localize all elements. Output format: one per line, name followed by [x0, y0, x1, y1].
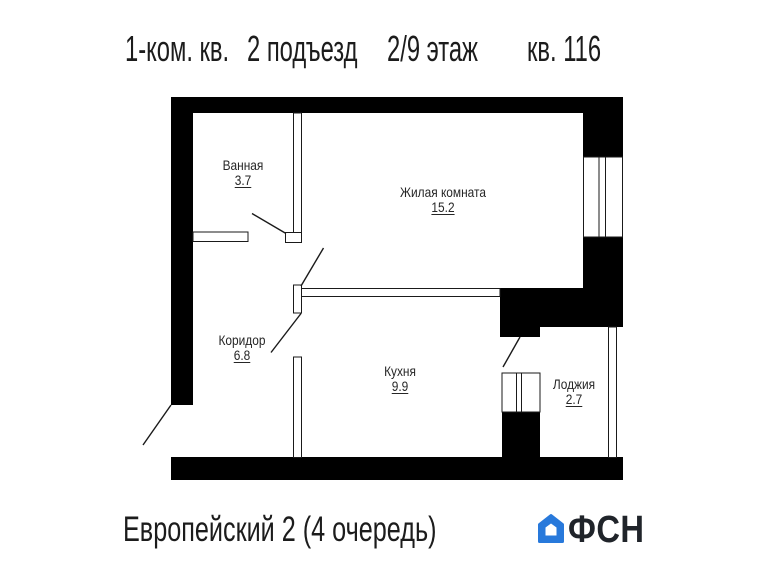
entrance-break-line — [143, 405, 171, 445]
room-area: 3.7 — [171, 173, 316, 188]
wall-under-window — [502, 412, 540, 458]
room-label-hallway: Коридор 6.8 — [170, 333, 315, 363]
wall-right-upper — [583, 97, 623, 157]
floorplan-page: 1-ком. кв. 2 подъезд 2/9 этаж кв. 116 — [0, 0, 768, 576]
room-label-living-room: Жилая комната 15.2 — [371, 185, 516, 215]
room-name: Ванная — [171, 158, 316, 173]
room-area: 6.8 — [170, 348, 315, 363]
room-name: Коридор — [170, 333, 315, 348]
floorplan-drawing — [0, 0, 768, 576]
wall-loggia-top — [540, 288, 585, 327]
room-label-bathroom: Ванная 3.7 — [171, 158, 316, 188]
room-name: Кухня — [328, 364, 473, 379]
logo-text: ФСН — [568, 511, 644, 549]
wall-mid-stub — [294, 285, 302, 313]
wall-right-mid — [583, 237, 623, 327]
wall-top — [171, 97, 623, 113]
door-swing-lines — [143, 214, 520, 446]
door-bathroom — [252, 214, 286, 234]
fsn-logo: ФСН — [535, 511, 645, 547]
house-icon — [535, 513, 567, 543]
room-area: 9.9 — [328, 379, 473, 394]
wall-bath-bottom — [193, 232, 248, 242]
room-area: 2.7 — [502, 392, 647, 407]
wall-bath-foot — [286, 233, 302, 243]
wall-bottom — [171, 457, 623, 480]
door-loggia — [503, 337, 520, 367]
room-label-kitchen: Кухня 9.9 — [328, 364, 473, 394]
wall-kitchen-corner — [500, 288, 540, 337]
room-name: Лоджия — [502, 377, 647, 392]
wall-hall-kitchen — [294, 357, 302, 458]
window-living-room — [584, 157, 623, 237]
room-area: 15.2 — [371, 200, 516, 215]
room-name: Жилая комната — [371, 185, 516, 200]
door-living — [301, 248, 324, 286]
room-label-loggia: Лоджия 2.7 — [502, 377, 647, 407]
project-name: Европейский 2 (4 очередь) — [123, 510, 436, 550]
wall-living-kitchen — [302, 289, 501, 297]
